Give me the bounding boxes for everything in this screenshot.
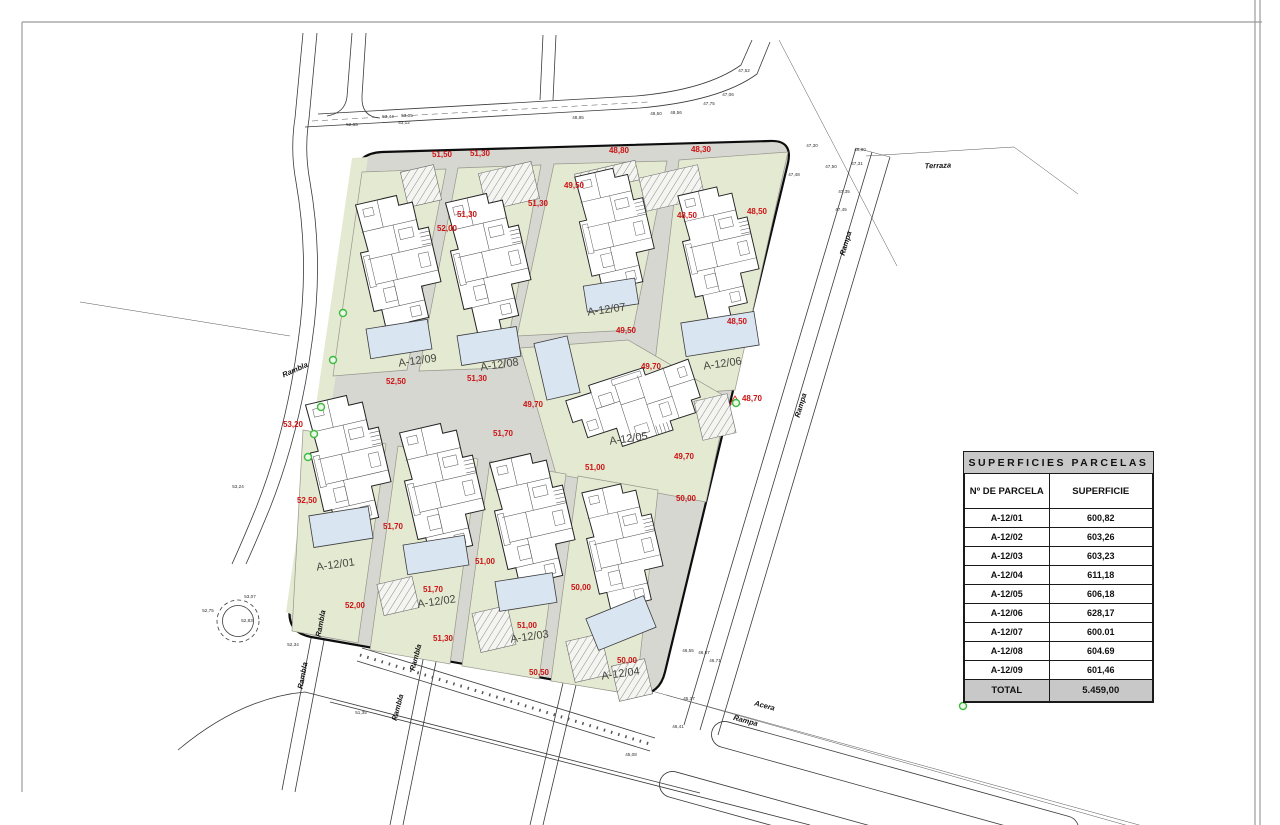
dimension-label: 52,50 — [297, 496, 318, 505]
total-value: 5.459,00 — [1049, 680, 1152, 702]
dimension-label: 48,50 — [727, 317, 748, 326]
dimension-label: 52,00 — [345, 601, 366, 610]
table-row: A-12/08604.69 — [965, 642, 1153, 661]
dimension-label: 51,70 — [383, 522, 404, 531]
elevation-label: 45,37 — [683, 696, 695, 701]
tree-icon — [305, 454, 312, 461]
dimension-label: 51,30 — [457, 210, 478, 219]
elevation-label: 52,75 — [202, 608, 214, 613]
elevation-label: 47,50 — [825, 164, 837, 169]
superficie-cell: 603,26 — [1049, 528, 1152, 547]
tree-icon — [311, 431, 318, 438]
dimension-label: 51,30 — [433, 634, 454, 643]
dimension-label: 53,20 — [283, 420, 304, 429]
superficie-cell: 611,18 — [1049, 566, 1152, 585]
tree-icon — [318, 404, 325, 411]
elevation-label: 46,87 — [698, 650, 710, 655]
dimension-label: 52,50 — [386, 377, 407, 386]
parcela-cell: A-12/08 — [965, 642, 1050, 661]
dimension-label: 50,00 — [676, 494, 697, 503]
parcela-cell: A-12/07 — [965, 623, 1050, 642]
dimension-label: 48,80 — [609, 146, 630, 155]
dimension-label: 49,70 — [523, 400, 544, 409]
elevation-label: 45,08 — [625, 752, 637, 757]
superficie-cell: 628,17 — [1049, 604, 1152, 623]
elevation-label: 51,35 — [355, 710, 367, 715]
elevation-label: 46,71 — [709, 658, 721, 663]
elevation-label: 47,75 — [703, 101, 715, 106]
total-label: TOTAL — [965, 680, 1050, 702]
dimension-label: 49,50 — [564, 181, 585, 190]
elevation-label: 47,45 — [835, 207, 847, 212]
dimension-label: 49,70 — [674, 452, 695, 461]
road-name-label: Rampa — [838, 230, 854, 257]
dimension-label: 51,00 — [517, 621, 538, 630]
superficie-cell: 600,82 — [1049, 509, 1152, 528]
superficie-cell: 604.69 — [1049, 642, 1152, 661]
tree-icon — [960, 703, 967, 710]
elevation-label: 47,52 — [738, 68, 750, 73]
dimension-label: 50,00 — [571, 583, 592, 592]
elevation-label: 52,65 — [346, 122, 358, 127]
elevation-label: 53,12 — [398, 120, 410, 125]
elevation-label: 47,35 — [838, 189, 850, 194]
table-row: A-12/07600.01 — [965, 623, 1153, 642]
col-header-parcela: Nº DE PARCELA — [965, 474, 1050, 509]
dimension-label: 52,00 — [437, 224, 458, 233]
elevation-label: 47,31 — [851, 161, 863, 166]
superficie-cell: 601,46 — [1049, 661, 1152, 680]
dimension-label: 48,50 — [747, 207, 768, 216]
table-row: A-12/01600,82 — [965, 509, 1153, 528]
tree-icon — [340, 310, 347, 317]
parcela-cell: A-12/03 — [965, 547, 1050, 566]
dimension-label: 49,50 — [616, 326, 637, 335]
superficie-cell: 603,23 — [1049, 547, 1152, 566]
road-name-label: Rampa — [732, 713, 758, 728]
elevation-label: 47,48 — [788, 172, 800, 177]
table-row: A-12/03603,23 — [965, 547, 1153, 566]
dimension-label: 48,50 — [677, 211, 698, 220]
parcela-cell: A-12/04 — [965, 566, 1050, 585]
parcela-cell: A-12/09 — [965, 661, 1050, 680]
road-name-label: Rampa — [793, 392, 809, 419]
elevation-label: 48,50 — [650, 111, 662, 116]
parcela-cell: A-12/01 — [965, 509, 1050, 528]
drawing-sheet: A-12/01A-12/02A-12/03A-12/04A-12/05A-12/… — [0, 0, 1280, 825]
superficie-cell: 600.01 — [1049, 623, 1152, 642]
table-row: A-12/02603,26 — [965, 528, 1153, 547]
superficie-cell: 606,18 — [1049, 585, 1152, 604]
road-name-label: Acera — [752, 698, 775, 712]
tree-icon — [733, 400, 740, 407]
table-title: SUPERFICIES PARCELAS — [964, 452, 1153, 474]
elevation-label: 48,85 — [572, 115, 584, 120]
road-name-label: Terraza — [925, 161, 952, 171]
elevation-label: 52,34 — [287, 642, 299, 647]
parcel-block — [286, 141, 789, 701]
dimension-label: 51,30 — [528, 199, 549, 208]
elevation-label: 47,06 — [722, 92, 734, 97]
elevation-label: 53,05 — [401, 113, 413, 118]
parcela-cell: A-12/05 — [965, 585, 1050, 604]
elevation-label: 52,83 — [241, 618, 253, 623]
table-row: A-12/05606,18 — [965, 585, 1153, 604]
dimension-label: 51,30 — [470, 149, 491, 158]
table-row: A-12/06628,17 — [965, 604, 1153, 623]
dimension-label: 50,50 — [529, 668, 550, 677]
tree-icon — [330, 357, 337, 364]
dimension-label: 51,00 — [585, 463, 606, 472]
elevation-label: 46,80 — [854, 147, 866, 152]
elevation-label: 46,55 — [682, 648, 694, 653]
elevation-label: 46,41 — [672, 724, 684, 729]
dimension-label: 51,70 — [493, 429, 514, 438]
elevation-label: 53,07 — [244, 594, 256, 599]
table-row: A-12/04611,18 — [965, 566, 1153, 585]
col-header-superficie: SUPERFICIE — [1049, 474, 1152, 509]
dimension-label: 48,70 — [742, 394, 763, 403]
dimension-label: 49,70 — [641, 362, 662, 371]
parcela-cell: A-12/06 — [965, 604, 1050, 623]
table-row: A-12/09601,46 — [965, 661, 1153, 680]
road-name-label: Rambla — [296, 661, 310, 689]
elevation-label: 47,30 — [806, 143, 818, 148]
dimension-label: 51,50 — [432, 150, 453, 159]
parcela-cell: A-12/02 — [965, 528, 1050, 547]
elevation-label: 53,24 — [232, 484, 244, 489]
dimension-label: 51,00 — [475, 557, 496, 566]
elevation-label: 48,56 — [670, 110, 682, 115]
dimension-label: 48,30 — [691, 145, 712, 154]
superficies-table: SUPERFICIES PARCELAS Nº DE PARCELA SUPER… — [963, 451, 1154, 703]
elevation-label: 53,44 — [382, 114, 394, 119]
dimension-label: 51,70 — [423, 585, 444, 594]
dimension-label: 51,30 — [467, 374, 488, 383]
dimension-label: 50,00 — [617, 656, 638, 665]
